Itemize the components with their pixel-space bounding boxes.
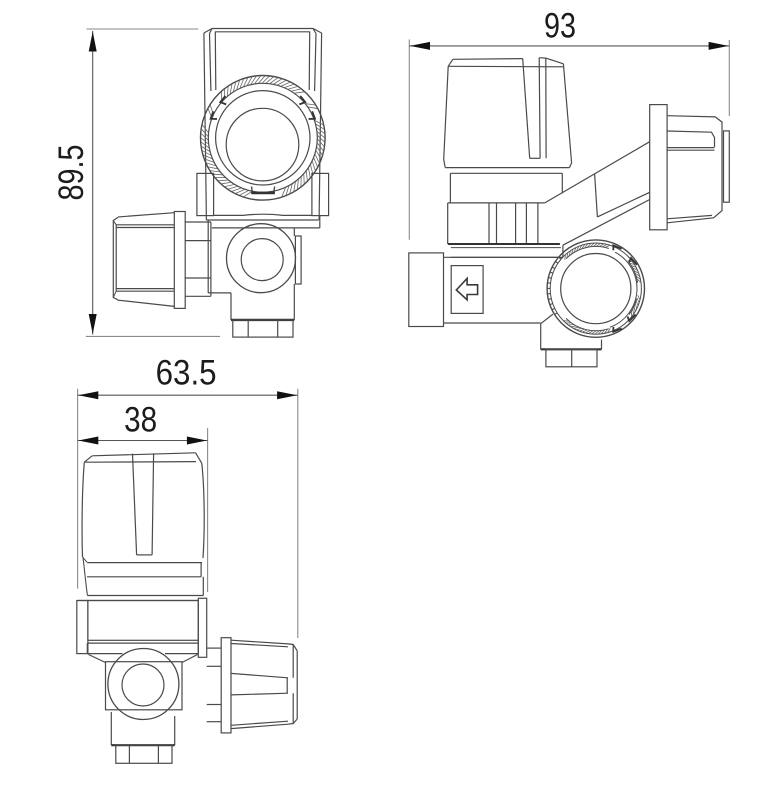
- svg-text:38: 38: [124, 400, 157, 439]
- svg-text:89.5: 89.5: [52, 145, 91, 201]
- svg-text:93: 93: [544, 6, 576, 45]
- svg-text:63.5: 63.5: [156, 353, 217, 392]
